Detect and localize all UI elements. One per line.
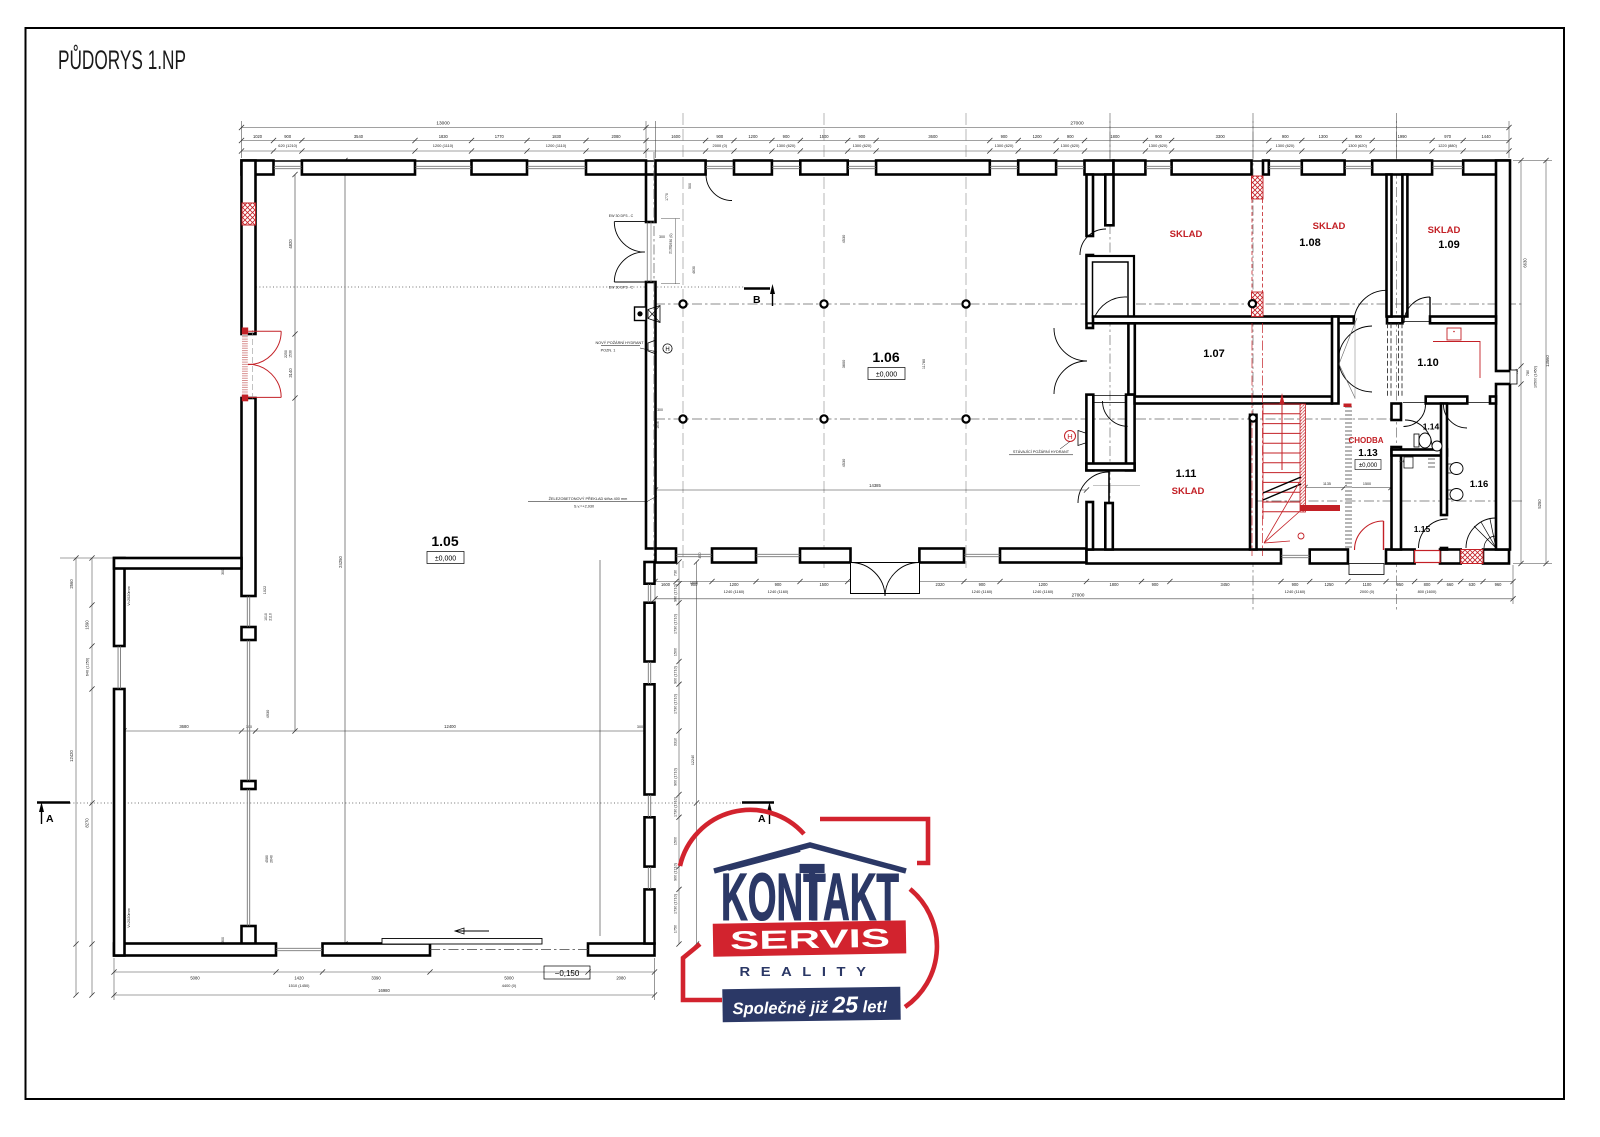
svg-text:300: 300 [221, 937, 225, 943]
svg-text:900 (1710): 900 (1710) [674, 584, 678, 602]
svg-text:12400: 12400 [444, 724, 456, 729]
svg-text:1.08: 1.08 [1299, 237, 1320, 249]
svg-text:1750: 1750 [674, 925, 678, 933]
svg-text:900: 900 [1155, 134, 1163, 139]
svg-text:V=2020mm: V=2020mm [127, 908, 131, 928]
svg-text:10500 (1450): 10500 (1450) [1534, 366, 1538, 388]
svg-text:1730 (1710): 1730 (1710) [674, 694, 678, 714]
svg-text:300: 300 [637, 725, 643, 729]
svg-text:1022: 1022 [263, 586, 267, 594]
svg-text:11780: 11780 [922, 359, 926, 369]
svg-text:1.16: 1.16 [1470, 479, 1489, 490]
svg-text:1.14: 1.14 [1423, 422, 1440, 432]
svg-text:900: 900 [1355, 134, 1363, 139]
svg-text:1100: 1100 [1363, 582, 1373, 587]
svg-text:960: 960 [1495, 582, 1503, 587]
svg-text:1200: 1200 [729, 582, 739, 587]
svg-text:REALITY: REALITY [740, 965, 877, 979]
svg-text:900: 900 [1001, 134, 1009, 139]
svg-text:4530: 4530 [842, 459, 846, 467]
svg-text:2250: 2250 [284, 350, 288, 358]
svg-text:1.06: 1.06 [872, 349, 899, 365]
svg-text:V=2020mm: V=2020mm [127, 586, 131, 606]
svg-text:970: 970 [1444, 134, 1452, 139]
svg-text:SKLAD: SKLAD [1172, 486, 1205, 497]
svg-text:A: A [758, 813, 766, 825]
svg-text:3300: 3300 [1216, 134, 1226, 139]
svg-text:900 (1710): 900 (1710) [674, 666, 678, 684]
svg-text:16980: 16980 [378, 988, 390, 993]
svg-text:900 (1710): 900 (1710) [674, 768, 678, 786]
svg-text:2560: 2560 [69, 579, 74, 589]
svg-text:2000 (0): 2000 (0) [713, 143, 728, 148]
svg-text:900: 900 [783, 134, 791, 139]
svg-text:14385: 14385 [869, 483, 881, 488]
svg-text:POZN. 1: POZN. 1 [601, 349, 616, 353]
svg-text:300: 300 [659, 235, 665, 239]
svg-text:EW 30 DP3 - C: EW 30 DP3 - C [609, 286, 634, 290]
svg-text:1500: 1500 [1363, 482, 1371, 486]
svg-text:1300 (620): 1300 (620) [853, 143, 873, 148]
svg-text:1600: 1600 [661, 582, 671, 587]
svg-text:1.13: 1.13 [1358, 448, 1378, 459]
svg-text:5250: 5250 [1537, 499, 1542, 509]
svg-text:1500: 1500 [819, 134, 829, 139]
svg-text:4400 (0): 4400 (0) [502, 983, 517, 988]
svg-text:2130: 2130 [669, 246, 673, 254]
svg-text:1800: 1800 [1109, 582, 1119, 587]
svg-text:1300 (620): 1300 (620) [1348, 143, 1368, 148]
svg-text:++: ++ [1399, 459, 1405, 465]
svg-text:900: 900 [1292, 582, 1300, 587]
svg-text:1220 (880): 1220 (880) [1438, 143, 1458, 148]
svg-text:SKLAD: SKLAD [1313, 221, 1346, 232]
svg-text:13000: 13000 [436, 121, 450, 127]
svg-text:950: 950 [1397, 582, 1405, 587]
svg-text:4930: 4930 [266, 710, 270, 718]
svg-text:1500: 1500 [674, 837, 678, 845]
svg-text:1770: 1770 [665, 193, 669, 201]
svg-text:1730 (1710): 1730 (1710) [674, 614, 678, 634]
svg-text:3600: 3600 [842, 360, 846, 368]
svg-text:±0,000: ±0,000 [876, 372, 897, 379]
svg-text:3540: 3540 [354, 134, 364, 139]
svg-text:1770: 1770 [495, 134, 505, 139]
svg-text:1300 (620): 1300 (620) [1276, 143, 1296, 148]
svg-text:S.v.=+2,930: S.v.=+2,930 [574, 505, 594, 509]
svg-text:900: 900 [1282, 134, 1290, 139]
svg-text:±0,000: ±0,000 [1359, 463, 1378, 469]
svg-text:5000: 5000 [504, 976, 514, 981]
svg-text:900: 900 [775, 582, 783, 587]
svg-text:800 (1600): 800 (1600) [1418, 589, 1438, 594]
svg-text:1200 (1110): 1200 (1110) [546, 143, 567, 148]
svg-text:NOVÝ POŽÁRNÍ HYDRANT: NOVÝ POŽÁRNÍ HYDRANT [595, 340, 644, 345]
svg-text:1300 (620): 1300 (620) [995, 143, 1015, 148]
svg-text:ŽELEZOBETONOVÝ PŘEKLAD šířka 4: ŽELEZOBETONOVÝ PŘEKLAD šířka 400 mm [549, 496, 628, 501]
svg-text:3600: 3600 [928, 134, 938, 139]
svg-text:300: 300 [246, 725, 252, 729]
svg-text:5080: 5080 [190, 976, 200, 981]
svg-text:660: 660 [1447, 582, 1455, 587]
svg-text:4820: 4820 [288, 239, 293, 249]
svg-text:3310: 3310 [674, 738, 678, 746]
svg-text:730: 730 [674, 570, 678, 576]
svg-text:1730 (1710): 1730 (1710) [674, 894, 678, 914]
svg-text:4530: 4530 [842, 235, 846, 243]
svg-text:2320: 2320 [935, 582, 945, 587]
svg-text:3390: 3390 [371, 976, 381, 981]
svg-text:500: 500 [688, 183, 692, 189]
svg-text:6630: 6630 [1523, 258, 1528, 268]
svg-text:12240: 12240 [691, 755, 695, 765]
svg-text:1010: 1010 [264, 613, 268, 621]
svg-text:1420: 1420 [294, 976, 304, 981]
svg-text:12420: 12420 [69, 750, 74, 762]
svg-text:SKLAD: SKLAD [1170, 229, 1203, 240]
svg-text:1.09: 1.09 [1438, 239, 1459, 251]
svg-text:900: 900 [1067, 134, 1075, 139]
svg-text:2110: 2110 [269, 613, 273, 621]
svg-text:1830: 1830 [439, 134, 449, 139]
svg-text:8270: 8270 [85, 818, 90, 828]
svg-text:780: 780 [1526, 370, 1530, 376]
svg-text:640 (1250): 640 (1250) [86, 657, 90, 676]
svg-text:1830: 1830 [552, 134, 562, 139]
svg-text:4630: 4630 [692, 266, 696, 274]
svg-text:1800: 1800 [1110, 134, 1120, 139]
svg-text:1530: 1530 [289, 350, 293, 358]
svg-text:1.11: 1.11 [1176, 468, 1197, 480]
svg-text:B: B [753, 294, 761, 306]
svg-text:1200: 1200 [1038, 582, 1048, 587]
svg-text:1200: 1200 [748, 134, 758, 139]
svg-text:SERVIS: SERVIS [730, 923, 890, 956]
svg-text:1.05: 1.05 [431, 533, 458, 549]
svg-text:1.10: 1.10 [1417, 357, 1438, 369]
svg-text:3680: 3680 [179, 724, 189, 729]
svg-text:1440: 1440 [1482, 134, 1492, 139]
svg-text:3140: 3140 [288, 368, 293, 378]
svg-text:A: A [46, 813, 54, 825]
svg-text:1600: 1600 [690, 581, 698, 585]
svg-text:4580: 4580 [265, 855, 269, 863]
svg-text:PŮDORYS 1.NP: PŮDORYS 1.NP [58, 43, 186, 75]
svg-text:630: 630 [1469, 582, 1477, 587]
svg-text:900: 900 [716, 134, 724, 139]
svg-text:900 (1710): 900 (1710) [674, 863, 678, 881]
svg-text:300: 300 [221, 569, 225, 575]
svg-text:2080: 2080 [611, 134, 621, 139]
svg-text:27000: 27000 [1072, 593, 1085, 598]
svg-text:1135: 1135 [1323, 482, 1331, 486]
svg-text:900: 900 [979, 582, 987, 587]
svg-text:1250: 1250 [1324, 582, 1334, 587]
svg-text:1300: 1300 [1319, 134, 1329, 139]
svg-text:2080: 2080 [616, 976, 626, 981]
svg-text:2930 (0): 2930 (0) [669, 233, 673, 246]
svg-text:1500: 1500 [674, 648, 678, 656]
svg-text:1500: 1500 [819, 582, 829, 587]
svg-text:1600: 1600 [671, 134, 681, 139]
svg-text:1200 (1110): 1200 (1110) [433, 143, 454, 148]
svg-text:620 (1210): 620 (1210) [278, 143, 298, 148]
svg-text:±0,000: ±0,000 [435, 556, 456, 563]
svg-text:1240 (1160): 1240 (1160) [1285, 589, 1306, 594]
svg-text:SKLAD: SKLAD [1428, 225, 1461, 236]
svg-text:1300 (620): 1300 (620) [777, 143, 797, 148]
svg-text:1240 (1160): 1240 (1160) [1033, 589, 1054, 594]
svg-text:1240 (1160): 1240 (1160) [768, 589, 789, 594]
svg-text:24250: 24250 [338, 556, 343, 568]
svg-text:STÁVAJÍCÍ POŽÁRNÍ HYDRANT: STÁVAJÍCÍ POŽÁRNÍ HYDRANT [1013, 449, 1070, 454]
svg-text:1590: 1590 [85, 620, 90, 630]
svg-text:27000: 27000 [1070, 121, 1084, 127]
svg-text:2000 (0): 2000 (0) [1360, 589, 1375, 594]
svg-text:900: 900 [284, 134, 292, 139]
svg-text:1990: 1990 [1398, 134, 1408, 139]
svg-text:H: H [665, 347, 669, 353]
svg-text:CHODBA: CHODBA [1348, 436, 1383, 445]
svg-text:1.07: 1.07 [1203, 348, 1224, 360]
svg-text:1300 (620): 1300 (620) [1061, 143, 1081, 148]
svg-text:H: H [1067, 432, 1072, 441]
svg-text:1200: 1200 [1033, 134, 1043, 139]
svg-text:1240 (1160): 1240 (1160) [972, 589, 993, 594]
svg-text:−0,150: −0,150 [555, 969, 580, 978]
svg-text:3450: 3450 [1220, 582, 1230, 587]
svg-text:1.15: 1.15 [1414, 524, 1431, 534]
svg-text:EW 30 DP3 - C: EW 30 DP3 - C [609, 214, 634, 218]
svg-text:13560: 13560 [1545, 355, 1550, 367]
svg-text:1510 (1450): 1510 (1450) [289, 983, 311, 988]
svg-text:450: 450 [698, 552, 702, 558]
svg-text:1300 (620): 1300 (620) [1149, 143, 1169, 148]
svg-text:1020: 1020 [253, 134, 263, 139]
svg-text:900: 900 [858, 134, 866, 139]
svg-text:900: 900 [1152, 582, 1160, 587]
svg-text:300: 300 [657, 408, 663, 412]
svg-text:1240 (1160): 1240 (1160) [724, 589, 745, 594]
svg-text:1730 (1710): 1730 (1710) [674, 797, 678, 817]
svg-text:2640: 2640 [270, 855, 274, 863]
svg-text:800: 800 [1424, 582, 1432, 587]
